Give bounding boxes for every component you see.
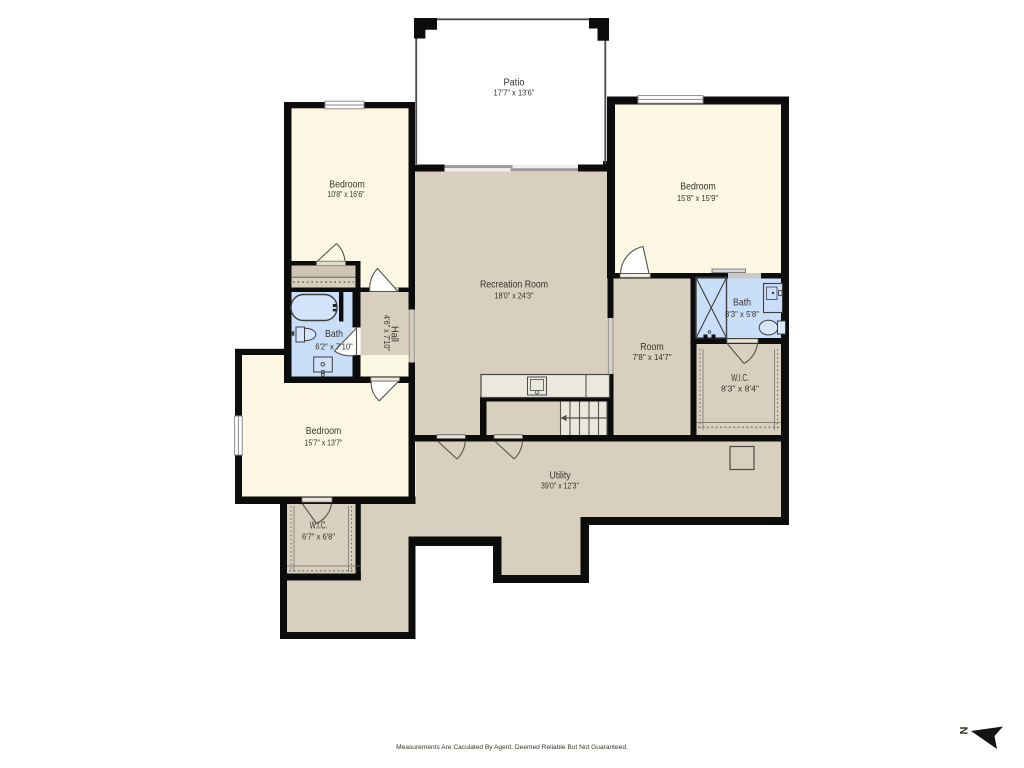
svg-text:10'8" x 16'6": 10'8" x 16'6" [328,189,365,199]
svg-text:6'2" x 7'10": 6'2" x 7'10" [315,342,353,352]
svg-text:15'8" x 15'9": 15'8" x 15'9" [677,193,718,203]
svg-text:17'7" x 13'6": 17'7" x 13'6" [494,88,535,98]
svg-text:8'3" x 8'4": 8'3" x 8'4" [721,384,759,394]
svg-text:4'6" x 7'10": 4'6" x 7'10" [382,315,392,351]
svg-text:Measurements Are Caculated By: Measurements Are Caculated By Agent. Dee… [396,744,628,751]
svg-text:N: N [959,727,971,735]
svg-text:W.I.C.: W.I.C. [731,372,749,384]
svg-text:Bath: Bath [325,328,343,340]
svg-text:Recreation Room: Recreation Room [480,279,548,291]
svg-text:8'3" x 5'8": 8'3" x 5'8" [725,309,759,319]
svg-text:18'0" x 24'3": 18'0" x 24'3" [495,291,534,301]
svg-text:Bedroom: Bedroom [680,181,716,193]
svg-text:15'7" x 13'7": 15'7" x 13'7" [305,438,343,448]
svg-text:Bedroom: Bedroom [306,425,342,437]
svg-text:39'0" x 12'3": 39'0" x 12'3" [541,481,579,491]
svg-text:6'7" x 6'8": 6'7" x 6'8" [302,532,335,542]
svg-text:7'8" x 14'7": 7'8" x 14'7" [633,352,672,362]
svg-text:Bath: Bath [733,297,751,309]
svg-text:W.I.C.: W.I.C. [310,520,328,532]
